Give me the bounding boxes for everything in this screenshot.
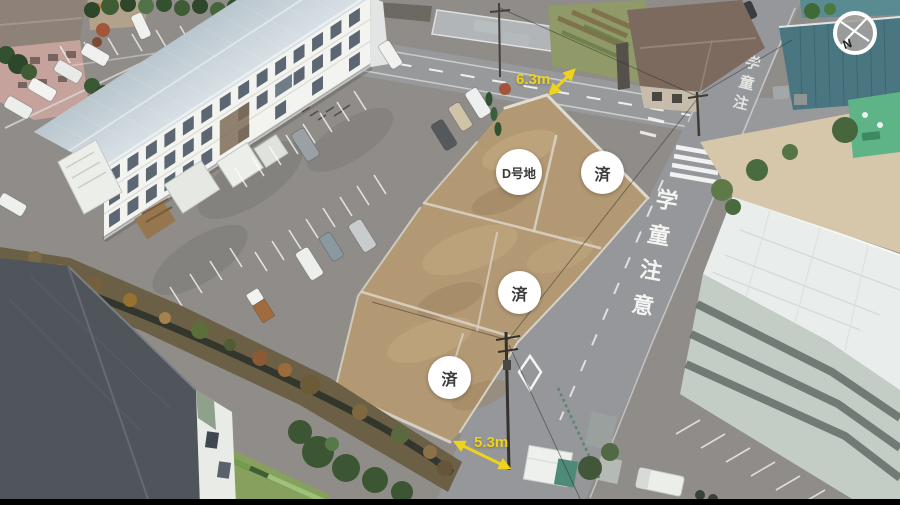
transformer: [503, 360, 511, 370]
svg-text:意: 意: [630, 291, 656, 319]
svg-text:学: 学: [654, 186, 680, 214]
svg-text:注: 注: [638, 256, 664, 284]
listing-photo-stage: 学 童 注 意 学 童 注: [0, 0, 900, 505]
svg-text:童: 童: [646, 221, 672, 249]
plot-badge-sold-2: 済: [498, 271, 541, 314]
plot-badge-sold-3: 済: [428, 356, 471, 399]
compass-dial: [830, 8, 880, 58]
plot-badge-sold-1: 済: [581, 151, 624, 194]
compass: N: [830, 8, 880, 58]
front-road-width-label: 6.3m: [516, 71, 550, 88]
red-shrub: [499, 83, 511, 95]
side-road-width-label: 5.3m: [474, 434, 508, 451]
roadside-tree: [711, 179, 733, 201]
letterbox-bar: [0, 499, 900, 505]
conifer-tree: [486, 92, 493, 106]
aerial-photo: 学 童 注 意 学 童 注: [0, 0, 900, 505]
plot-badge-d: D号地: [496, 149, 542, 195]
